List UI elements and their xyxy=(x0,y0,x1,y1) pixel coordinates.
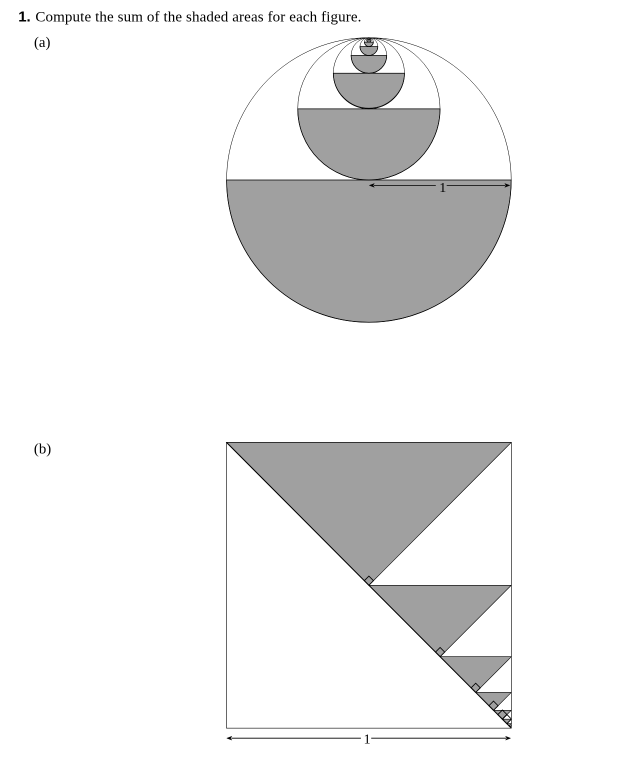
svg-text:Compute the sum of the shaded: Compute the sum of the shaded areas for … xyxy=(35,9,361,25)
svg-text:(b): (b) xyxy=(34,441,51,457)
svg-text:1.: 1. xyxy=(18,8,31,25)
svg-text:1: 1 xyxy=(364,733,371,748)
svg-text:(a): (a) xyxy=(34,35,50,51)
svg-text:1: 1 xyxy=(439,181,446,196)
